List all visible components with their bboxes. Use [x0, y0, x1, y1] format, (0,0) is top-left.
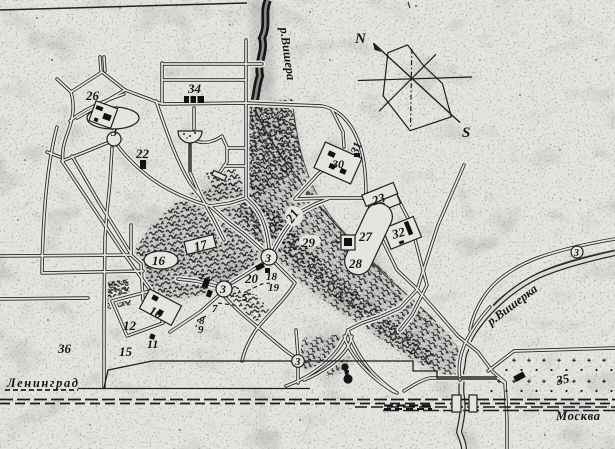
- svg-text:N: N: [354, 31, 367, 47]
- svg-text:Ленинград: Ленинград: [6, 376, 78, 390]
- svg-text:12: 12: [123, 318, 137, 333]
- svg-text:30: 30: [331, 157, 344, 171]
- svg-text:11: 11: [147, 337, 158, 351]
- svg-text:36: 36: [57, 341, 72, 356]
- svg-text:3: 3: [294, 356, 301, 368]
- svg-text:34: 34: [187, 81, 202, 96]
- svg-text:29: 29: [301, 235, 316, 250]
- svg-text:3: 3: [264, 251, 271, 265]
- svg-text:5: 5: [242, 292, 248, 304]
- svg-text:3: 3: [573, 248, 579, 259]
- svg-text:27: 27: [358, 229, 373, 244]
- svg-text:15: 15: [119, 344, 133, 359]
- svg-text:16: 16: [152, 253, 166, 268]
- svg-text:20: 20: [244, 271, 259, 286]
- svg-text:22: 22: [135, 146, 150, 161]
- svg-text:3: 3: [219, 282, 226, 296]
- svg-text:S: S: [462, 125, 470, 141]
- svg-text:19: 19: [268, 282, 280, 294]
- svg-text:Москва: Москва: [555, 409, 600, 423]
- svg-text:28: 28: [348, 256, 363, 271]
- svg-text:3: 3: [110, 125, 117, 139]
- svg-text:9: 9: [198, 324, 204, 336]
- svg-text:7: 7: [212, 303, 218, 315]
- svg-text:26: 26: [85, 88, 100, 103]
